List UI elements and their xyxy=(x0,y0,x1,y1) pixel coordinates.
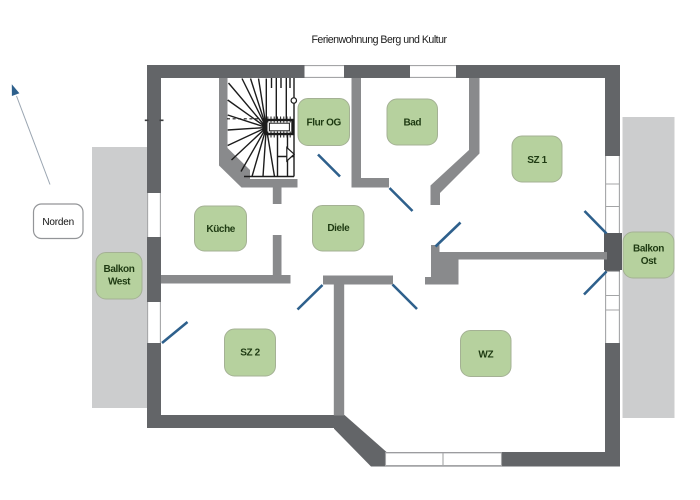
svg-text:SZ 2: SZ 2 xyxy=(240,348,260,359)
svg-text:Flur OG: Flur OG xyxy=(306,118,341,129)
svg-text:Balkon: Balkon xyxy=(633,244,664,255)
svg-text:Ferienwohnung Berg und Kultur: Ferienwohnung Berg und Kultur xyxy=(311,34,447,46)
svg-text:Diele: Diele xyxy=(327,223,350,234)
svg-text:Norden: Norden xyxy=(42,217,74,228)
svg-text:WZ: WZ xyxy=(478,350,493,361)
svg-text:Ost: Ost xyxy=(641,256,658,267)
svg-text:Balkon: Balkon xyxy=(104,264,135,275)
svg-text:West: West xyxy=(108,277,131,288)
svg-text:Küche: Küche xyxy=(206,224,235,235)
svg-text:Bad: Bad xyxy=(403,118,421,129)
svg-text:SZ 1: SZ 1 xyxy=(527,155,547,166)
